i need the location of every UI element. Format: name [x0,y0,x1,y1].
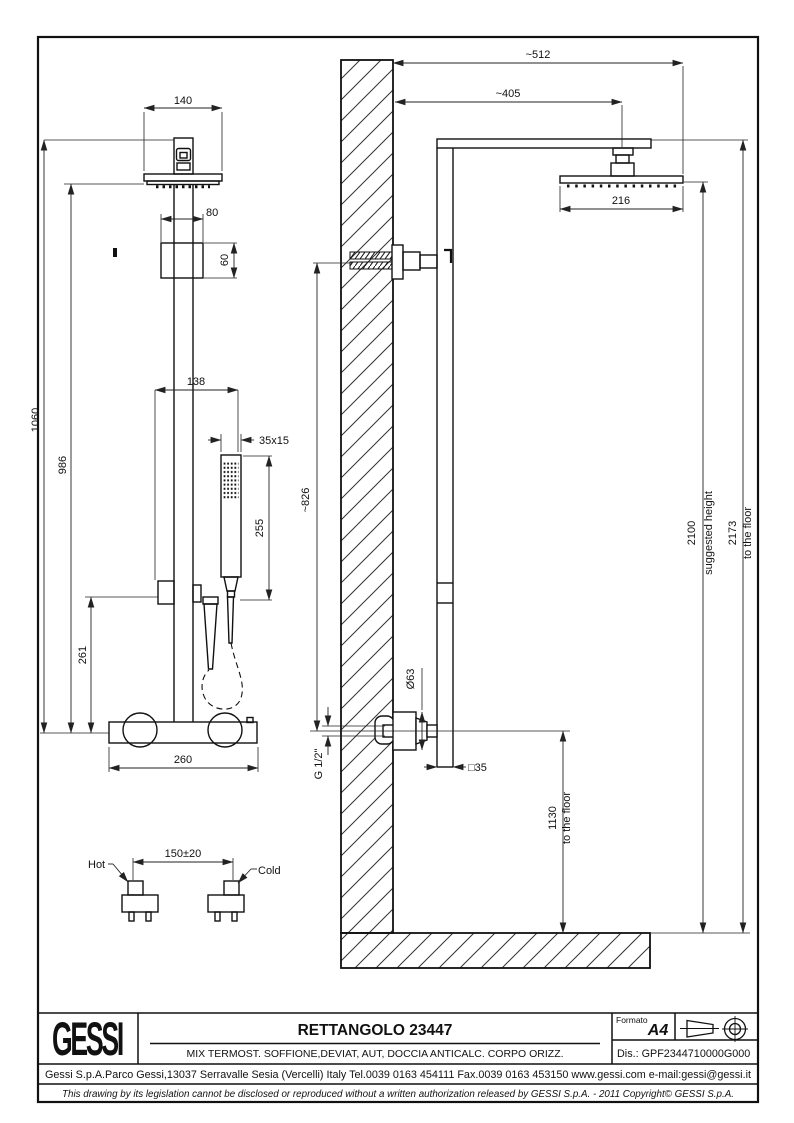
dim-handshower-offset: 138 [187,376,205,388]
dim-mixer-width: 260 [174,754,192,766]
hot-label: Hot [88,859,105,871]
drawing-canvas: 140 80 60 138 35x15 255 1060 [0,0,794,1123]
product-title: RETTANGOLO 23447 [298,1022,453,1039]
dim-supply-spacing: 150±20 [165,848,202,860]
floor-section [341,933,650,968]
gessi-logo: GESSI [52,1012,123,1065]
dim-suggested-height-label: suggested height [703,491,715,575]
wall-section [341,60,393,933]
dim-mixer-height-label: to the floor [561,792,573,844]
handshower [202,455,242,709]
company-address: Gessi S.p.A.Parco Gessi,13037 Serravalle… [45,1069,751,1081]
dim-mixer-height-value: 1130 [547,806,559,830]
shower-column-front [113,184,203,722]
dim-flange-diameter: Ø63 [405,669,417,690]
dim-thread: G 1/2" [313,749,325,780]
formato-value: A4 [647,1022,669,1039]
dim-bracket-width: 80 [206,207,218,219]
diverter-outlet [203,597,218,604]
supply-fittings [122,881,244,921]
dim-total-height-label: to the floor [742,507,754,559]
shower-column-side [437,139,651,767]
wall-mark [113,248,117,257]
wall-bracket-front [161,243,203,278]
product-subtitle: MIX TERMOST. SOFFIONE,DEVIAT, AUT, DOCCI… [186,1048,563,1060]
fixing-screw-top [350,252,392,259]
overhead-shower-side [560,148,683,186]
technical-drawing-sheet: 140 80 60 138 35x15 255 1060 [0,0,794,1123]
first-angle-projection-icon [680,1021,719,1038]
copyright-disclaimer: This drawing by its legislation cannot b… [62,1089,734,1100]
dim-bracket-height: 60 [219,254,231,266]
shower-arm [437,139,651,148]
dim-arm-reach: ~512 [526,49,551,61]
drawing-number: Dis.: GPF2344710000G000 [617,1048,750,1060]
overhead-shower-front [144,138,222,187]
allen-key-icon [444,250,451,263]
formato-label: Formato [616,1015,648,1025]
fixing-screw-bottom [350,262,392,269]
dim-column-section: □35 [468,762,487,774]
title-block: GESSI RETTANGOLO 23447 MIX TERMOST. SOFF… [38,1012,758,1100]
handshower-spray-face [224,461,239,499]
slider-bracket [158,581,174,604]
dim-head-to-mixer: 986 [57,456,69,474]
front-view: 140 80 60 138 35x15 255 1060 [30,95,289,921]
dim-handshower-length: 255 [254,519,266,537]
front-view-dimensions: 140 80 60 138 35x15 255 1060 [30,95,289,883]
dim-head-center-offset: ~405 [496,88,521,100]
target-crosshair-icon [722,1016,748,1042]
side-view: ~512 ~405 216 ~826 2100 suggested height… [300,49,754,968]
cold-label: Cold [258,865,281,877]
dim-handshower-section: 35x15 [259,435,289,447]
dim-suggested-height-value: 2100 [686,521,698,545]
dim-head-width: 140 [174,95,192,107]
thermostatic-mixer-front [109,713,257,747]
dim-head-depth: 216 [612,195,630,207]
dim-holder-to-mixer: 261 [77,646,89,664]
dim-wall-outlet-to-mixer: ~826 [300,488,312,513]
dim-overall-height: 1060 [30,408,42,432]
dim-total-height-value: 2173 [727,521,739,545]
